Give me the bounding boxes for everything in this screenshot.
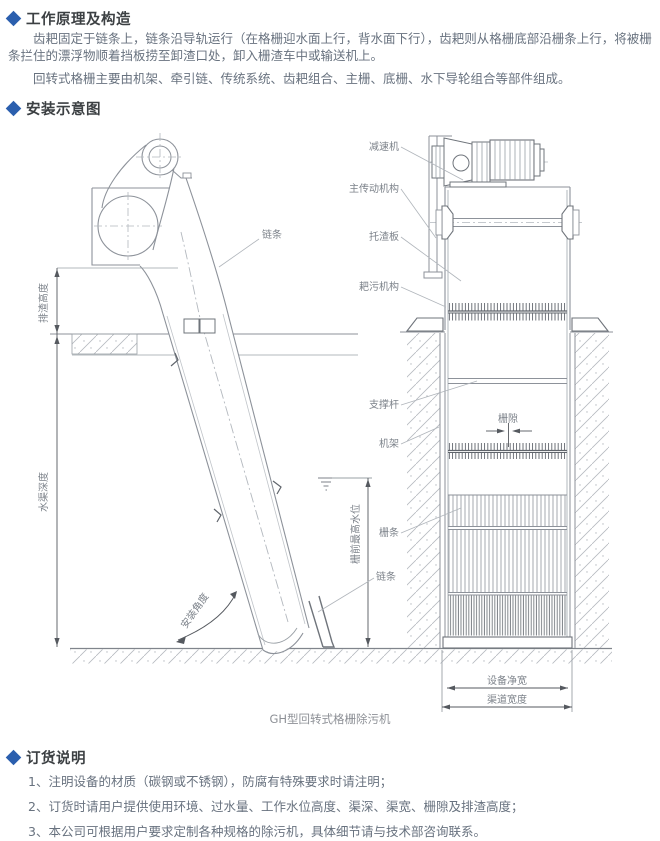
bottom-plate bbox=[443, 637, 572, 648]
diamond-icon bbox=[6, 11, 22, 27]
working-principle-title: 工作原理及构造 bbox=[26, 8, 131, 29]
working-principle-heading: 工作原理及构造 bbox=[8, 8, 131, 29]
label-discharge-height: 排渣高度 bbox=[37, 283, 50, 323]
label-frame: 机架 bbox=[379, 437, 399, 450]
label-chain-top: 链条 bbox=[262, 228, 282, 241]
label-rake-mechanism: 耙污机构 bbox=[359, 280, 399, 293]
installation-heading: 安装示意图 bbox=[8, 98, 101, 119]
ordering-item-2: 2、订货时请用户提供使用环境、过水量、工作水位高度、渠深、渠宽、栅隙及排渣高度； bbox=[28, 796, 523, 815]
label-equipment-net-width: 设备净宽 bbox=[487, 674, 527, 687]
diamond-icon bbox=[6, 750, 22, 766]
left-wall-hatch bbox=[407, 333, 440, 648]
installation-diagram: 链条 排渣高度 水渠深度 栅前最高水位 安装角度 减速机 主传动机构 托渣板 耙… bbox=[0, 122, 660, 742]
principle-paragraph-1: 齿耙固定于链条上，链条沿导轨运行（在格栅迎水面上行，背水面下行），齿耙则从格栅底… bbox=[8, 31, 654, 64]
ground-hatch bbox=[70, 650, 612, 664]
label-install-angle: 安装角度 bbox=[178, 590, 212, 630]
motor-assembly bbox=[428, 138, 548, 187]
ordering-item-3: 3、本公司可根据用户要求定制各种规格的除污机，具体细节请与技术部咨询联系。 bbox=[28, 821, 486, 840]
right-wall-hatch bbox=[575, 333, 609, 648]
label-channel-depth: 水渠深度 bbox=[37, 472, 50, 512]
diagram-caption: GH型回转式格栅除污机 bbox=[269, 712, 391, 726]
ordering-item-1: 1、注明设备的材质（碳钢或不锈钢），防腐有特殊要求时请注明； bbox=[28, 771, 392, 790]
label-reducer: 减速机 bbox=[369, 140, 399, 153]
ordering-heading: 订货说明 bbox=[8, 747, 86, 768]
front-view bbox=[400, 136, 613, 648]
label-front-max-water-level: 栅前最高水位 bbox=[349, 504, 362, 564]
ordering-title: 订货说明 bbox=[26, 747, 86, 768]
rake-comb-upper bbox=[448, 303, 567, 321]
label-support-rod: 支撑杆 bbox=[369, 398, 399, 411]
label-grid-bar: 栅条 bbox=[379, 526, 399, 539]
installation-title: 安装示意图 bbox=[26, 98, 101, 119]
label-chain-bottom: 链条 bbox=[376, 570, 396, 583]
label-main-drive: 主传动机构 bbox=[349, 182, 399, 195]
head-shaft bbox=[430, 206, 582, 239]
rake-comb-lower bbox=[448, 443, 567, 459]
grid-bars bbox=[448, 495, 567, 636]
water-level-icon bbox=[318, 478, 334, 490]
principle-paragraph-2: 回转式格栅主要由机架、牵引链、传统系统、齿耙组合、主栅、底栅、水下导轮组合等部件… bbox=[8, 71, 654, 88]
catalog-page: 工作原理及构造 齿耙固定于链条上，链条沿导轨运行（在格栅迎水面上行，背水面下行）… bbox=[0, 0, 660, 841]
label-channel-width: 渠道宽度 bbox=[487, 693, 527, 706]
bottom-support bbox=[309, 596, 334, 647]
label-slag-tray: 托渣板 bbox=[369, 230, 399, 243]
diamond-icon bbox=[6, 101, 22, 117]
label-grid-gap: 栅隙 bbox=[498, 412, 518, 425]
